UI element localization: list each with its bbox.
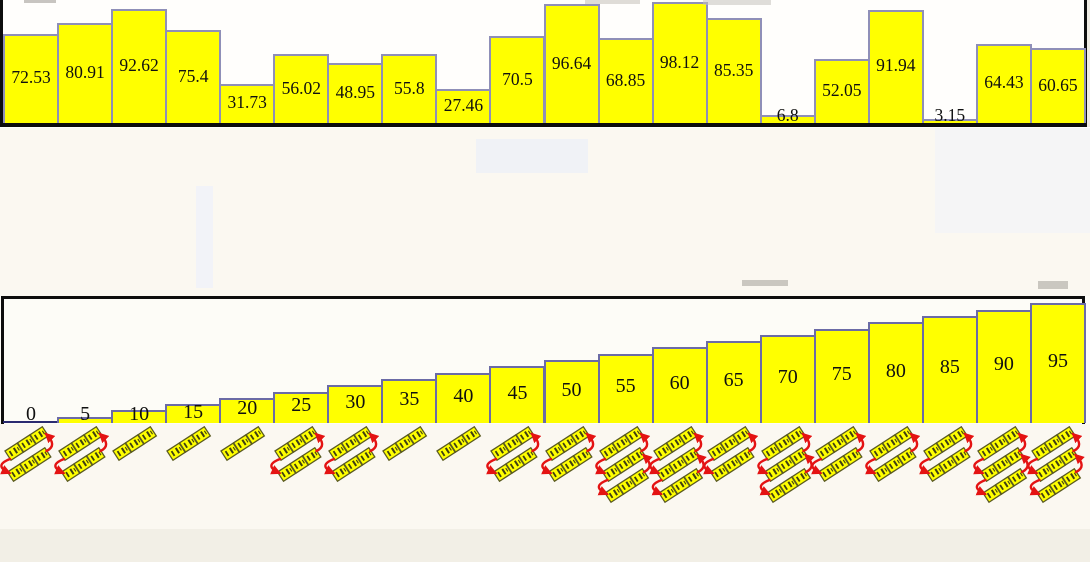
background-artifact <box>742 280 788 286</box>
bar-value-label: 85 <box>922 356 978 378</box>
bar-value-label: 96.64 <box>544 54 600 73</box>
background-artifact <box>935 128 1090 233</box>
bar-value-label: 27.46 <box>435 96 491 115</box>
bar-value-label: 90 <box>976 353 1032 375</box>
bar-value-label: 30 <box>327 391 383 413</box>
swap-arrow <box>1073 434 1079 451</box>
bar-value-label: 40 <box>435 385 491 407</box>
sorted-array-chart: 05101520253035404550556065707580859095 <box>0 296 1090 424</box>
mini-array-row <box>113 427 156 460</box>
bar-value-label: 52.05 <box>814 81 870 100</box>
background-artifact <box>196 186 213 288</box>
bar-value-label: 5 <box>57 403 113 425</box>
bar-value-label: 50 <box>544 379 600 401</box>
mini-array-row <box>167 427 210 460</box>
bar-value-label: 60.65 <box>1030 76 1086 95</box>
background-artifact <box>1038 281 1068 289</box>
bar-value-label: 95 <box>1030 350 1086 372</box>
bar-value-label: 80 <box>868 360 924 382</box>
bar-value-label: 80.91 <box>57 63 113 82</box>
bar-value-label: 48.95 <box>327 83 383 102</box>
bar-value-label: 56.02 <box>273 79 329 98</box>
bar-value-label: 72.53 <box>3 68 59 87</box>
bar-value-label: 3.15 <box>922 106 978 125</box>
bar-value-label: 45 <box>489 382 545 404</box>
sorting-visualization: 72.5380.9192.6275.431.7356.0248.9555.827… <box>0 0 1090 562</box>
background-artifact <box>476 139 588 173</box>
mini-array-row <box>437 427 480 460</box>
bar-value-label: 15 <box>165 401 221 423</box>
bar-value-label: 6.8 <box>760 106 816 125</box>
bar-value-label: 10 <box>111 403 167 425</box>
chart-frame-top <box>1 296 1085 299</box>
bar-value-label: 85.35 <box>706 61 762 80</box>
bar-value-label: 70 <box>760 366 816 388</box>
bar-value-label: 0 <box>3 403 59 425</box>
mini-array-row <box>383 427 426 460</box>
swap-diagram-unit <box>1021 425 1090 547</box>
bar-value-label: 25 <box>273 394 329 416</box>
bar-value-label: 55 <box>598 375 654 397</box>
swap-diagram-strip <box>0 424 1090 562</box>
bar-value-label: 65 <box>706 369 762 391</box>
bar-value-label: 31.73 <box>219 93 275 112</box>
bar-value-label: 68.85 <box>598 71 654 90</box>
bar-value-label: 75.4 <box>165 67 221 86</box>
swap-arrow <box>1075 455 1081 472</box>
bar-value-label: 60 <box>652 372 708 394</box>
bar-value-label: 35 <box>381 388 437 410</box>
bar-value-label: 92.62 <box>111 56 167 75</box>
bar-value-label: 91.94 <box>868 56 924 75</box>
bar-value-label: 70.5 <box>489 70 545 89</box>
mini-array-row <box>221 427 264 460</box>
bar-value-label: 20 <box>219 397 275 419</box>
bar-value-label: 75 <box>814 363 870 385</box>
unsorted-array-chart: 72.5380.9192.6275.431.7356.0248.9555.827… <box>0 0 1090 128</box>
bar-value-label: 64.43 <box>976 73 1032 92</box>
bar-value-label: 98.12 <box>652 53 708 72</box>
bar-value-label: 55.8 <box>381 79 437 98</box>
